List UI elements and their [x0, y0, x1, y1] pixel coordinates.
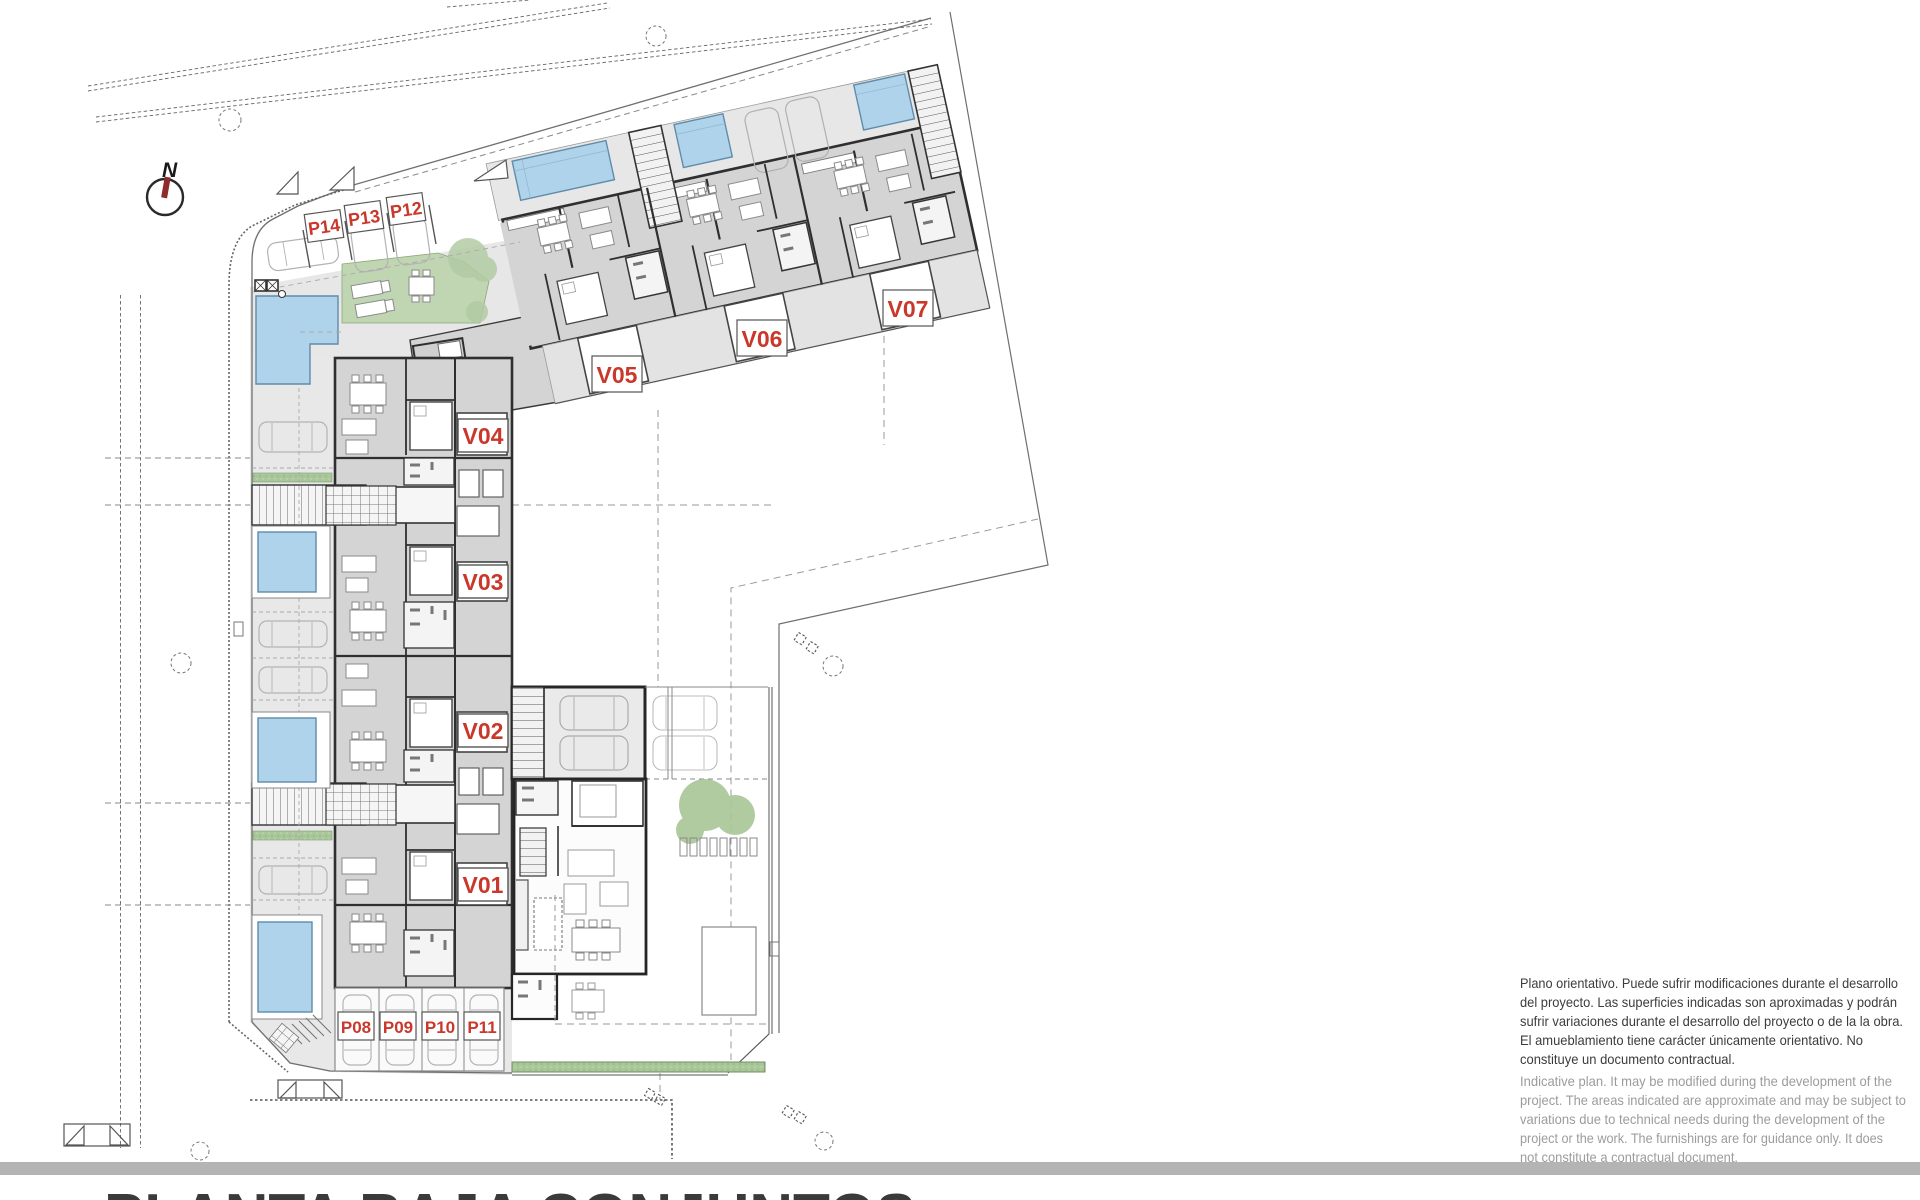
svg-text:constituye un documento contra: constituye un documento contractual. [1520, 1051, 1735, 1067]
svg-text:V01: V01 [463, 872, 504, 898]
svg-text:N: N [162, 159, 178, 182]
svg-text:variations due to technical ne: variations due to technical needs during… [1520, 1111, 1885, 1127]
svg-text:V05: V05 [597, 362, 638, 388]
svg-text:PLANTA BAJA CONJUNTOS: PLANTA BAJA CONJUNTOS [104, 1182, 916, 1200]
svg-text:P08: P08 [341, 1018, 371, 1037]
svg-text:Indicative plan. It may be mod: Indicative plan. It may be modified duri… [1520, 1073, 1892, 1089]
svg-text:P09: P09 [383, 1018, 413, 1037]
svg-text:project or the work. The furni: project or the work. The furnishings are… [1520, 1130, 1883, 1146]
svg-text:Plano orientativo. Puede sufri: Plano orientativo. Puede sufrir modifica… [1520, 975, 1898, 991]
svg-text:V02: V02 [463, 718, 504, 744]
svg-text:V07: V07 [888, 296, 929, 322]
svg-text:V06: V06 [742, 326, 783, 352]
svg-text:del proyecto. Las superficies: del proyecto. Las superficies indicadas … [1520, 994, 1897, 1010]
svg-text:V04: V04 [463, 423, 504, 449]
svg-text:P11: P11 [467, 1018, 496, 1037]
svg-text:El amueblamiento tiene carácte: El amueblamiento tiene carácter únicamen… [1520, 1032, 1863, 1048]
svg-text:P10: P10 [425, 1018, 455, 1037]
svg-text:V03: V03 [463, 569, 504, 595]
svg-text:project. The areas indicated a: project. The areas indicated are approxi… [1520, 1092, 1906, 1108]
svg-text:sufrir variaciones durante el: sufrir variaciones durante el desarrollo… [1520, 1013, 1903, 1029]
